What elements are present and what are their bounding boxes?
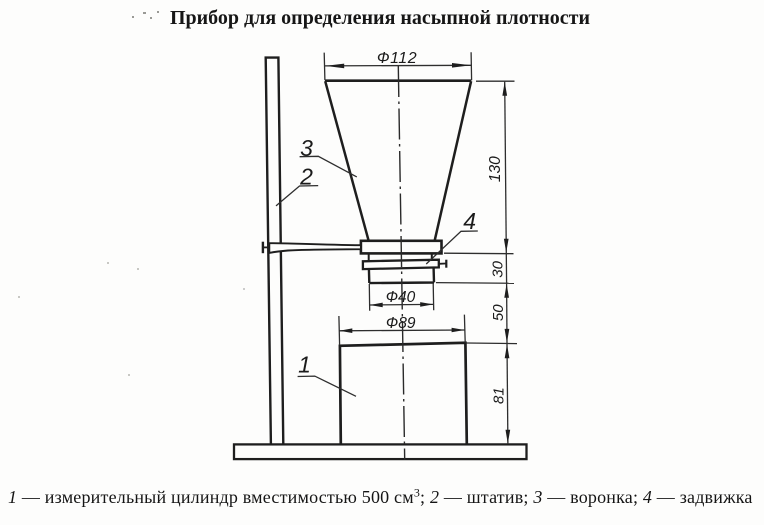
svg-text:81: 81 (490, 387, 507, 404)
svg-text:30: 30 (490, 260, 507, 277)
svg-text:Прибор для определения насыпно: Прибор для определения насыпной плотност… (170, 7, 590, 29)
svg-text:50: 50 (490, 304, 507, 321)
svg-text:4: 4 (463, 208, 476, 234)
svg-text:Ф89: Ф89 (386, 315, 416, 332)
svg-text:1 — измерительный цилиндр вмес: 1 — измерительный цилиндр вместимостью 5… (8, 486, 753, 508)
svg-text:Ф40: Ф40 (386, 289, 416, 306)
svg-text:Ф112: Ф112 (377, 50, 417, 67)
svg-text:130: 130 (487, 156, 504, 182)
svg-text:1: 1 (298, 351, 311, 377)
